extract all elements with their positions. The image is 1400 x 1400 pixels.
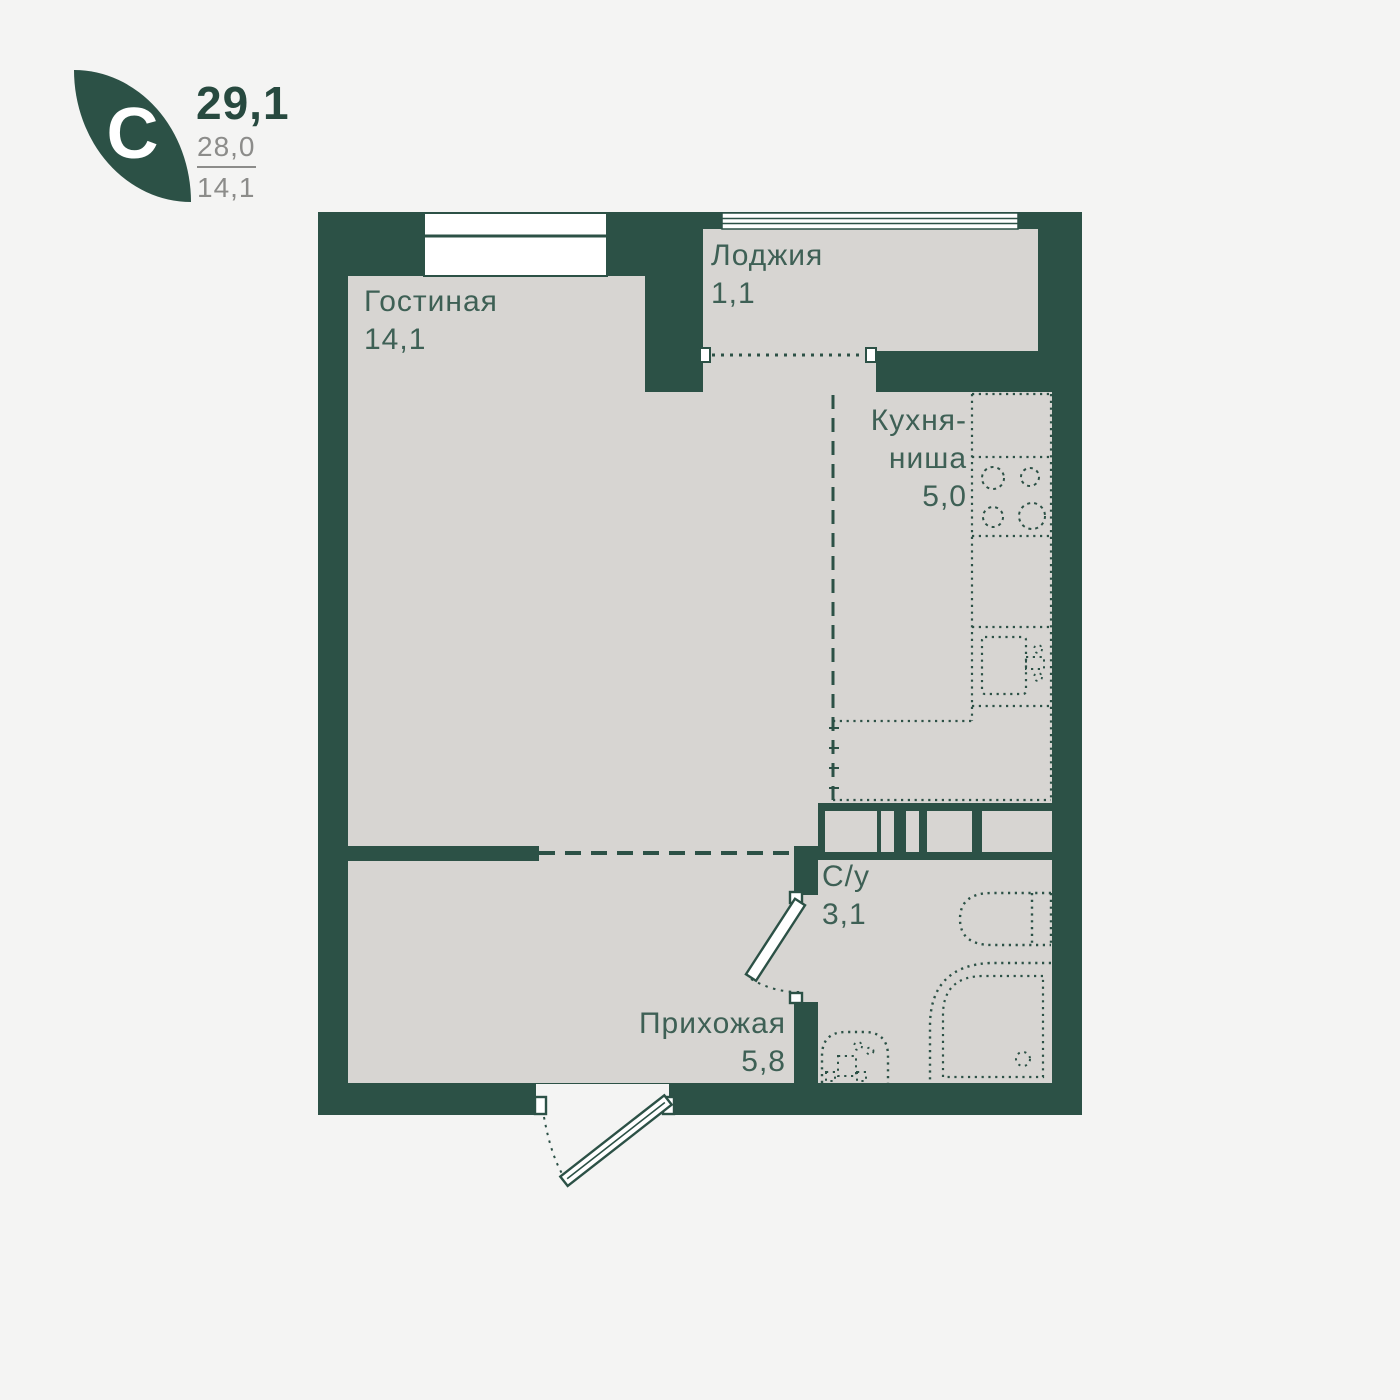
room-label-loggia: Лоджия 1,1 <box>711 237 823 313</box>
room-area: 1,1 <box>711 275 823 313</box>
vent-shaft-opening <box>982 811 1052 852</box>
apartment-type-letter: С <box>107 98 159 170</box>
vent-shaft-opening <box>881 811 894 852</box>
room-area: 3,1 <box>822 896 870 934</box>
room-floor-mid <box>645 392 703 846</box>
room-area: 5,0 <box>871 478 967 516</box>
room-label-hallway: Прихожая 5,8 <box>639 1005 786 1081</box>
room-area: 5,8 <box>639 1043 786 1081</box>
room-name: Лоджия <box>711 237 823 275</box>
room-area: 14,1 <box>364 321 498 359</box>
total-area-value: 29,1 <box>196 76 290 130</box>
vent-shaft-opening <box>825 811 877 852</box>
room-floor-passage <box>703 351 794 846</box>
room-name: Гостиная <box>364 283 498 321</box>
room-name: Прихожая <box>639 1005 786 1043</box>
studio-leaf-logo: С <box>74 70 191 202</box>
secondary-area-value: 28,0 <box>197 131 256 168</box>
room-name: Кухня- <box>871 402 967 440</box>
room-floor-living <box>348 276 645 846</box>
room-floor-kitchen-left <box>818 351 876 803</box>
entry-door-swing-arc <box>544 1117 564 1177</box>
room-floor-doorway <box>794 895 818 1002</box>
room-name: С/у <box>822 858 870 896</box>
room-label-kitchen: Кухня- ниша 5,0 <box>871 402 967 516</box>
floorplan-canvas: С 29,1 28,0 14,1 <box>0 0 1400 1400</box>
room-label-bathroom: С/у 3,1 <box>822 858 870 934</box>
room-name: ниша <box>871 440 967 478</box>
wall-living-hall-divider <box>348 846 539 861</box>
living-area-value: 14,1 <box>197 172 256 204</box>
vent-shaft-opening <box>927 811 972 852</box>
room-label-living: Гостиная 14,1 <box>364 283 498 359</box>
room-floor-col <box>794 351 818 846</box>
vent-shaft-opening <box>906 811 919 852</box>
